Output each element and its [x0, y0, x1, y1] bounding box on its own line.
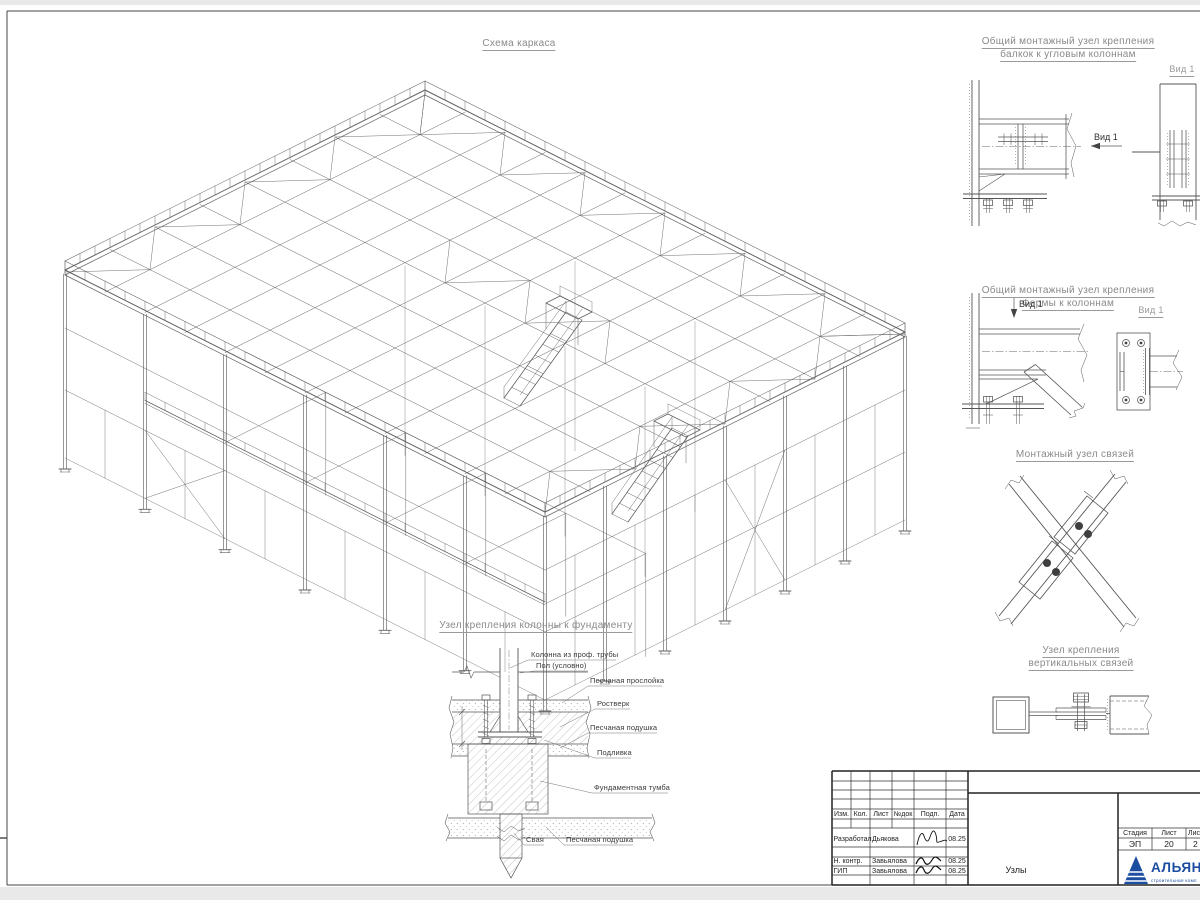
tb-row-gip-name: Завьялова: [872, 868, 907, 876]
detail1-view-arrow-label: Вид 1: [1094, 133, 1118, 143]
tb-col-izm: Изм.: [834, 811, 849, 819]
detail4-title-line1: Узел крепления: [1042, 645, 1119, 658]
tb-stage-value: ЭП: [1129, 840, 1141, 849]
tb-row-checker-name: Завьялова: [872, 858, 907, 866]
label-column: Колонна из проф. трубы: [531, 651, 618, 659]
alliance-logo-text: АЛЬЯН: [1151, 861, 1200, 876]
tb-col-doc: №док: [894, 811, 913, 819]
label-sand-layer: Песчаная прослойка: [590, 677, 664, 685]
label-sand-cushion2: Песчаная подушка: [566, 836, 633, 844]
tb-sheet-label: Лист: [1161, 830, 1176, 838]
drawing-viewer: { "page": { "main_title": "Схема каркаса…: [0, 0, 1200, 900]
tb-stage-label: Стадия: [1123, 830, 1147, 838]
tb-row-developer-date: 08.25: [948, 836, 966, 844]
detail1-title-line1: Общий монтажный узел крепления: [982, 36, 1155, 49]
label-floor: Пол (условно): [536, 662, 587, 670]
tb-row-developer-role: Разработал: [834, 836, 872, 844]
detail1-title-line2: балкок к угловым колоннам: [1000, 49, 1136, 62]
tb-sheets-value: 2: [1193, 840, 1198, 849]
detail2-view-arrow-label: Вид 1: [1019, 300, 1043, 310]
tb-col-podp: Подп.: [921, 811, 940, 819]
detail2-view-title: Вид 1: [1138, 306, 1163, 318]
foundation-title: Узел крепления колонны к фундаменту: [439, 620, 632, 633]
tb-col-data: Дата: [949, 811, 965, 819]
alliance-logo-subtext: строительная комп: [1151, 878, 1197, 883]
tb-row-checker-date: 08.25: [948, 858, 966, 866]
label-sand-cushion: Песчаная подушка: [590, 724, 657, 732]
main-title: Схема каркаса: [482, 38, 555, 51]
detail3-title: Монтажный узел связей: [1016, 449, 1134, 462]
tb-sheets-label: Лис: [1188, 830, 1200, 838]
detail1-view-title: Вид 1: [1169, 65, 1194, 77]
label-grout: Подливка: [597, 749, 632, 757]
label-foundation-block: Фундаментная тумба: [594, 784, 670, 792]
tb-sheet-value: 20: [1164, 840, 1173, 849]
tb-row-gip-role: ГИП: [834, 868, 848, 876]
detail2-title-line1: Общий монтажный узел крепления: [982, 285, 1155, 298]
label-pile: Свая: [526, 836, 544, 844]
tb-row-gip-date: 08.25: [948, 868, 966, 876]
tb-col-list: Лист: [873, 811, 888, 819]
label-grillage: Ростверк: [597, 700, 629, 708]
tb-doc-name: Узлы: [1006, 866, 1027, 876]
tb-row-developer-name: Дьякова: [872, 836, 899, 844]
tb-row-checker-role: Н. контр.: [834, 858, 863, 866]
detail4-title-line2: вертикальных связей: [1029, 658, 1134, 671]
tb-col-kol: Кол.: [854, 811, 868, 819]
